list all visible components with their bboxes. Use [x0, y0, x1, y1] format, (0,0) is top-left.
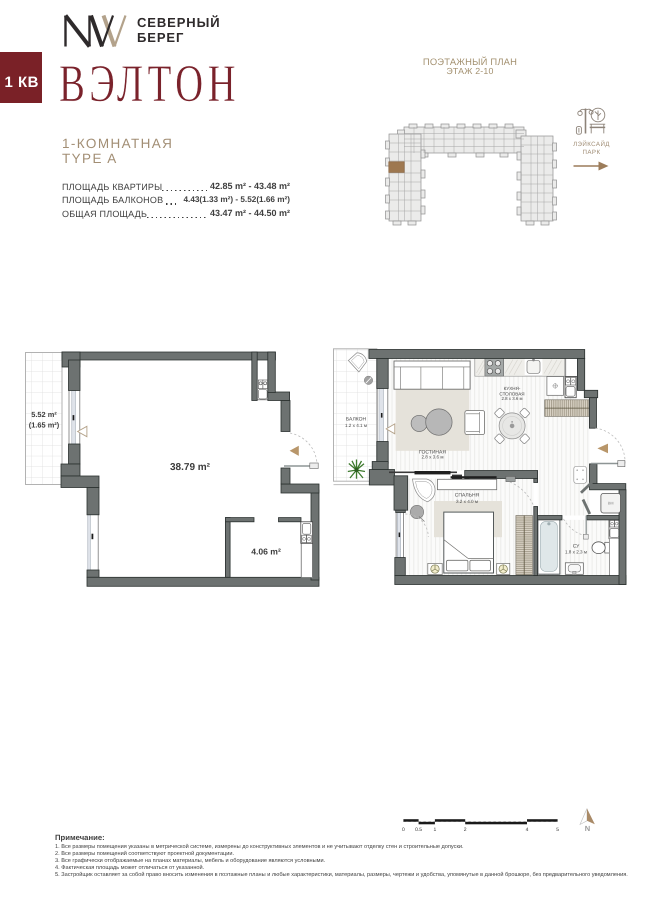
svg-text:ВМ: ВМ [608, 502, 614, 506]
svg-text:1.8 x 2.3 м: 1.8 x 2.3 м [565, 549, 587, 554]
svg-text:2.8 x 3.6 м: 2.8 x 3.6 м [501, 396, 522, 401]
svg-text:0: 0 [402, 827, 405, 833]
svg-text:2: 2 [464, 827, 467, 833]
svg-text:5: 5 [556, 827, 559, 833]
svg-text:4: 4 [526, 827, 529, 833]
svg-text:0.5: 0.5 [415, 827, 422, 833]
svg-text:38.79 m²: 38.79 m² [170, 462, 211, 473]
svg-text:1: 1 [434, 827, 437, 833]
svg-text:5.52 m²: 5.52 m² [31, 410, 57, 419]
svg-text:КУХНЯ-: КУХНЯ- [504, 386, 521, 391]
svg-text:N: N [585, 824, 590, 833]
svg-text:4.06 m²: 4.06 m² [251, 547, 281, 557]
svg-text:СПАЛЬНЯ: СПАЛЬНЯ [455, 492, 480, 498]
svg-text:3.2 x 4.0 м: 3.2 x 4.0 м [456, 499, 478, 504]
svg-text:(1.65 m²): (1.65 m²) [29, 421, 60, 430]
svg-text:2.8 x 3.6 м: 2.8 x 3.6 м [421, 455, 443, 460]
svg-text:БАЛКОН: БАЛКОН [346, 417, 367, 423]
svg-text:1.2 x 4.1 м: 1.2 x 4.1 м [345, 423, 367, 428]
